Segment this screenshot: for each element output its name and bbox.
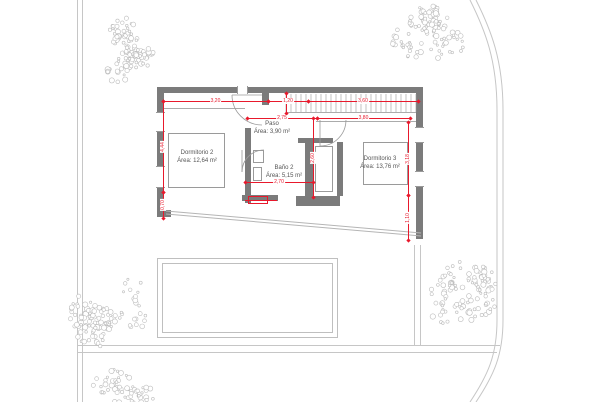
tree-icon (391, 4, 465, 60)
dimension-arrow (161, 190, 165, 194)
room-name: Baño 2 (250, 165, 318, 173)
site-boundary-bottom-line (77, 352, 497, 353)
site-boundary-right-curve (476, 0, 503, 402)
bath-fixture (253, 150, 264, 163)
dimension-arrow (311, 116, 315, 120)
room-label-dormitorio-2: Dormitorio 2 Área: 12,64 m² (157, 150, 237, 165)
terrace-edge-diagonal (166, 214, 421, 236)
wall-segment (157, 87, 423, 93)
window-opening (415, 127, 424, 143)
dimension-label: 2,70 (273, 179, 285, 185)
floor-plan-canvas: Dormitorio 2 Área: 12,64 m² Paso Área: 3… (0, 0, 604, 402)
tree-icons (68, 4, 497, 402)
tree-icon (105, 16, 155, 84)
tree-icon (68, 278, 146, 348)
dimension-arrow (406, 238, 410, 242)
stair-edge-line (286, 112, 416, 113)
hall-edge-line (316, 121, 416, 122)
terrace-edge-diagonal (166, 211, 421, 233)
tree-icon (429, 260, 497, 324)
dimension-label: 4,44 (160, 141, 166, 153)
wall-segment (416, 87, 423, 239)
dimension-label: 3,60 (357, 98, 369, 104)
dimension-arrow (406, 193, 410, 197)
terrace-fence-line (414, 245, 415, 345)
room-name: Paso (240, 121, 304, 129)
room-label-paso: Paso Área: 3,90 m² (240, 121, 304, 136)
window-opening (237, 86, 248, 94)
room-label-bano-2: Baño 2 Área: 5,15 m² (250, 165, 318, 180)
terrace-fence-line (420, 245, 421, 345)
dimension-arrow (306, 99, 310, 103)
room-area: Área: 12,64 m² (157, 158, 237, 166)
dimension-label: 3,18 (405, 153, 411, 165)
wall-segment (296, 196, 340, 206)
red-marker-box (248, 196, 268, 204)
dimension-arrow (161, 99, 165, 103)
site-boundary-right-curve (470, 0, 497, 402)
dimension-arrow (245, 116, 249, 120)
room-area: Área: 3,90 m² (240, 129, 304, 137)
room-name: Dormitorio 2 (157, 150, 237, 158)
staircase (286, 94, 416, 112)
dimension-label: 3,20 (210, 98, 222, 104)
wardrobe-line (164, 108, 245, 109)
dimension-label: 1,20 (282, 98, 294, 104)
pool-outline-inner (162, 263, 333, 333)
dimension-label: 0,70 (160, 199, 166, 211)
site-boundary-bottom-line (77, 345, 500, 346)
site-boundary-left-line (82, 0, 83, 402)
wall-segment (337, 142, 343, 196)
window-opening (415, 171, 424, 187)
dimension-label: 3,80 (358, 115, 370, 121)
dimension-label: 2,75 (276, 115, 288, 121)
wall-segment (298, 138, 333, 143)
tree-icon (91, 368, 154, 402)
dimension-label: 1,10 (405, 212, 411, 224)
dimension-label: 2,60 (310, 152, 316, 164)
site-boundary-left-line (77, 0, 78, 402)
